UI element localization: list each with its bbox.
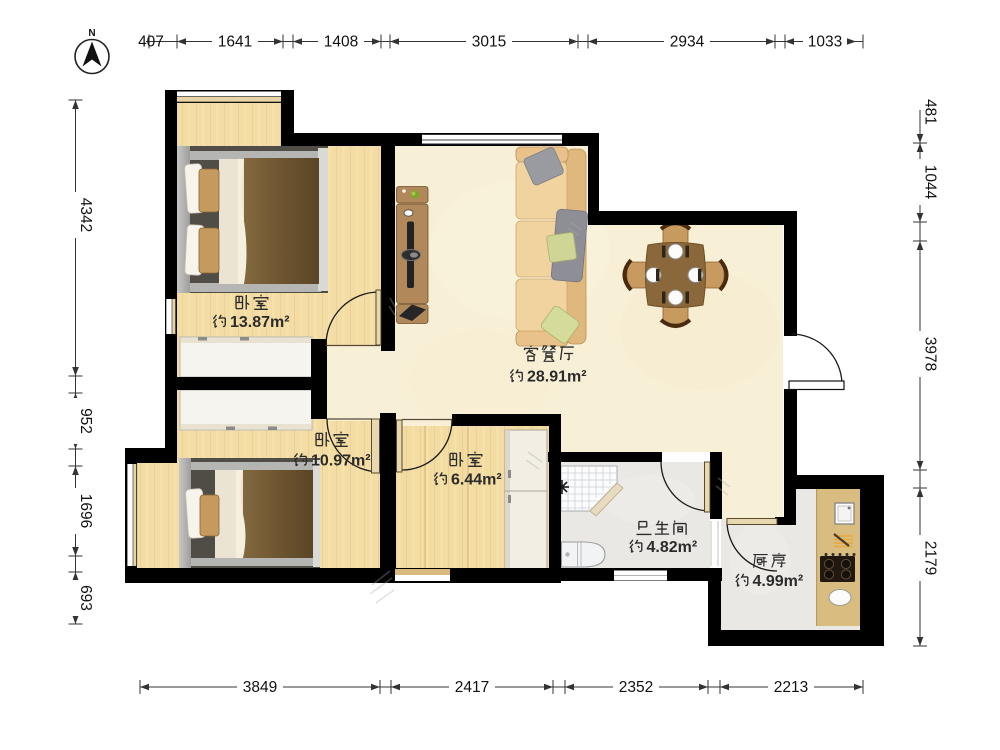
svg-text:2352: 2352 — [619, 679, 653, 696]
svg-text:28.91m²: 28.91m² — [527, 369, 587, 386]
svg-text:N: N — [88, 28, 95, 39]
svg-text:13.87m²: 13.87m² — [230, 314, 290, 331]
svg-text:407: 407 — [138, 34, 164, 51]
svg-text:2179: 2179 — [922, 541, 939, 575]
svg-text:6.44m²: 6.44m² — [451, 472, 502, 489]
svg-text:1044: 1044 — [922, 165, 939, 200]
svg-text:4342: 4342 — [77, 198, 94, 232]
svg-text:1408: 1408 — [324, 34, 358, 51]
svg-text:2934: 2934 — [670, 34, 705, 51]
svg-text:3978: 3978 — [922, 337, 939, 371]
svg-text:10.97m²: 10.97m² — [311, 453, 371, 470]
svg-text:4.82m²: 4.82m² — [647, 539, 698, 556]
svg-text:3015: 3015 — [472, 34, 506, 51]
svg-text:2213: 2213 — [774, 679, 808, 696]
svg-text:693: 693 — [77, 585, 94, 611]
svg-text:952: 952 — [77, 408, 94, 434]
svg-text:1696: 1696 — [77, 494, 94, 528]
svg-text:2417: 2417 — [455, 679, 489, 696]
svg-text:1033: 1033 — [808, 34, 842, 51]
svg-text:3849: 3849 — [243, 679, 277, 696]
svg-text:1641: 1641 — [218, 34, 252, 51]
svg-text:4.99m²: 4.99m² — [753, 573, 804, 590]
svg-text:481: 481 — [922, 99, 939, 125]
